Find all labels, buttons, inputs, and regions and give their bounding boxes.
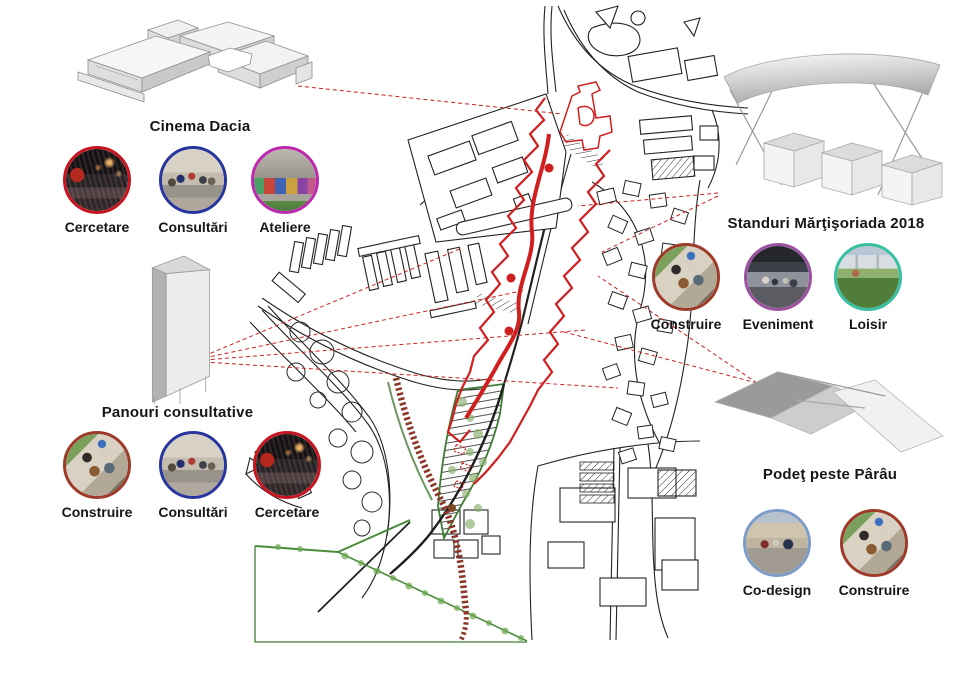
market-event-photo xyxy=(747,246,809,308)
graffiti-workshop-photo xyxy=(254,149,316,211)
group-consultation-photo xyxy=(162,434,224,496)
standuri-martisoriada-title: Standuri Mărţişoriada 2018 xyxy=(695,215,957,232)
footbridge-model xyxy=(705,340,955,465)
activity-panouri-cercetare: Cercetare xyxy=(241,431,333,520)
activity-label: Co-design xyxy=(743,582,811,598)
activity-label: Ateliere xyxy=(259,219,310,235)
activity-cinema-ateliere: Ateliere xyxy=(239,146,331,235)
activity-label: Eveniment xyxy=(743,316,814,332)
activity-standuri-loisir: Loisir xyxy=(822,243,914,332)
panouri-consultative-title: Panouri consultative xyxy=(60,404,295,421)
footbridge-axonometric xyxy=(705,340,955,465)
activity-podet-construire: Construire xyxy=(828,509,920,598)
cinema-dacia-model xyxy=(60,8,315,113)
cinema-audience-photo xyxy=(256,434,318,496)
wood-construction-photo xyxy=(655,246,717,308)
street-codesign-photo xyxy=(746,512,808,574)
diagram-canvas: Cinema Dacia Cercetare Consultări Atelie… xyxy=(0,0,960,678)
activity-standuri-construire: Construire xyxy=(640,243,732,332)
activity-label: Consultări xyxy=(158,504,227,520)
consultation-panel-model xyxy=(140,248,220,406)
leader-panouri-4 xyxy=(204,362,618,388)
activity-label: Loisir xyxy=(849,316,887,332)
photo-circle-consultari xyxy=(159,146,227,214)
activity-label: Construire xyxy=(62,504,133,520)
photo-circle-cercetare xyxy=(63,146,131,214)
photo-circle-codesign xyxy=(743,509,811,577)
activity-label: Construire xyxy=(839,582,910,598)
activity-cinema-cercetare: Cercetare xyxy=(51,146,143,235)
photo-circle-loisir xyxy=(834,243,902,311)
activity-panouri-construire: Construire xyxy=(51,431,143,520)
photo-circle-construire xyxy=(63,431,131,499)
photo-circle-construire xyxy=(652,243,720,311)
consultation-panel-prism xyxy=(140,248,220,406)
activity-label: Cercetare xyxy=(65,219,130,235)
podet-peste-parau-title: Podeţ peste Pârâu xyxy=(715,466,945,483)
activity-cinema-consultari: Consultări xyxy=(147,146,239,235)
leader-panouri-3 xyxy=(204,330,586,360)
activity-panouri-consultari: Consultări xyxy=(147,431,239,520)
wood-construction-photo xyxy=(66,434,128,496)
activity-label: Construire xyxy=(651,316,722,332)
group-consultation-photo xyxy=(162,149,224,211)
market-stands-model xyxy=(712,45,952,210)
cinema-building-axonometric xyxy=(60,8,315,113)
cinema-audience-photo xyxy=(66,149,128,211)
activity-label: Cercetare xyxy=(255,504,320,520)
photo-circle-consultari xyxy=(159,431,227,499)
photo-circle-cercetare xyxy=(253,431,321,499)
photo-circle-eveniment xyxy=(744,243,812,311)
activity-label: Consultări xyxy=(158,219,227,235)
activity-standuri-eveniment: Eveniment xyxy=(732,243,824,332)
activity-podet-codesign: Co-design xyxy=(731,509,823,598)
market-stands-canopy xyxy=(712,45,952,210)
cinema-dacia-title: Cinema Dacia xyxy=(80,118,320,135)
photo-circle-ateliere xyxy=(251,146,319,214)
leader-cinema xyxy=(298,86,562,114)
wood-construction-photo xyxy=(843,512,905,574)
park-leisure-photo xyxy=(837,246,899,308)
photo-circle-construire xyxy=(840,509,908,577)
